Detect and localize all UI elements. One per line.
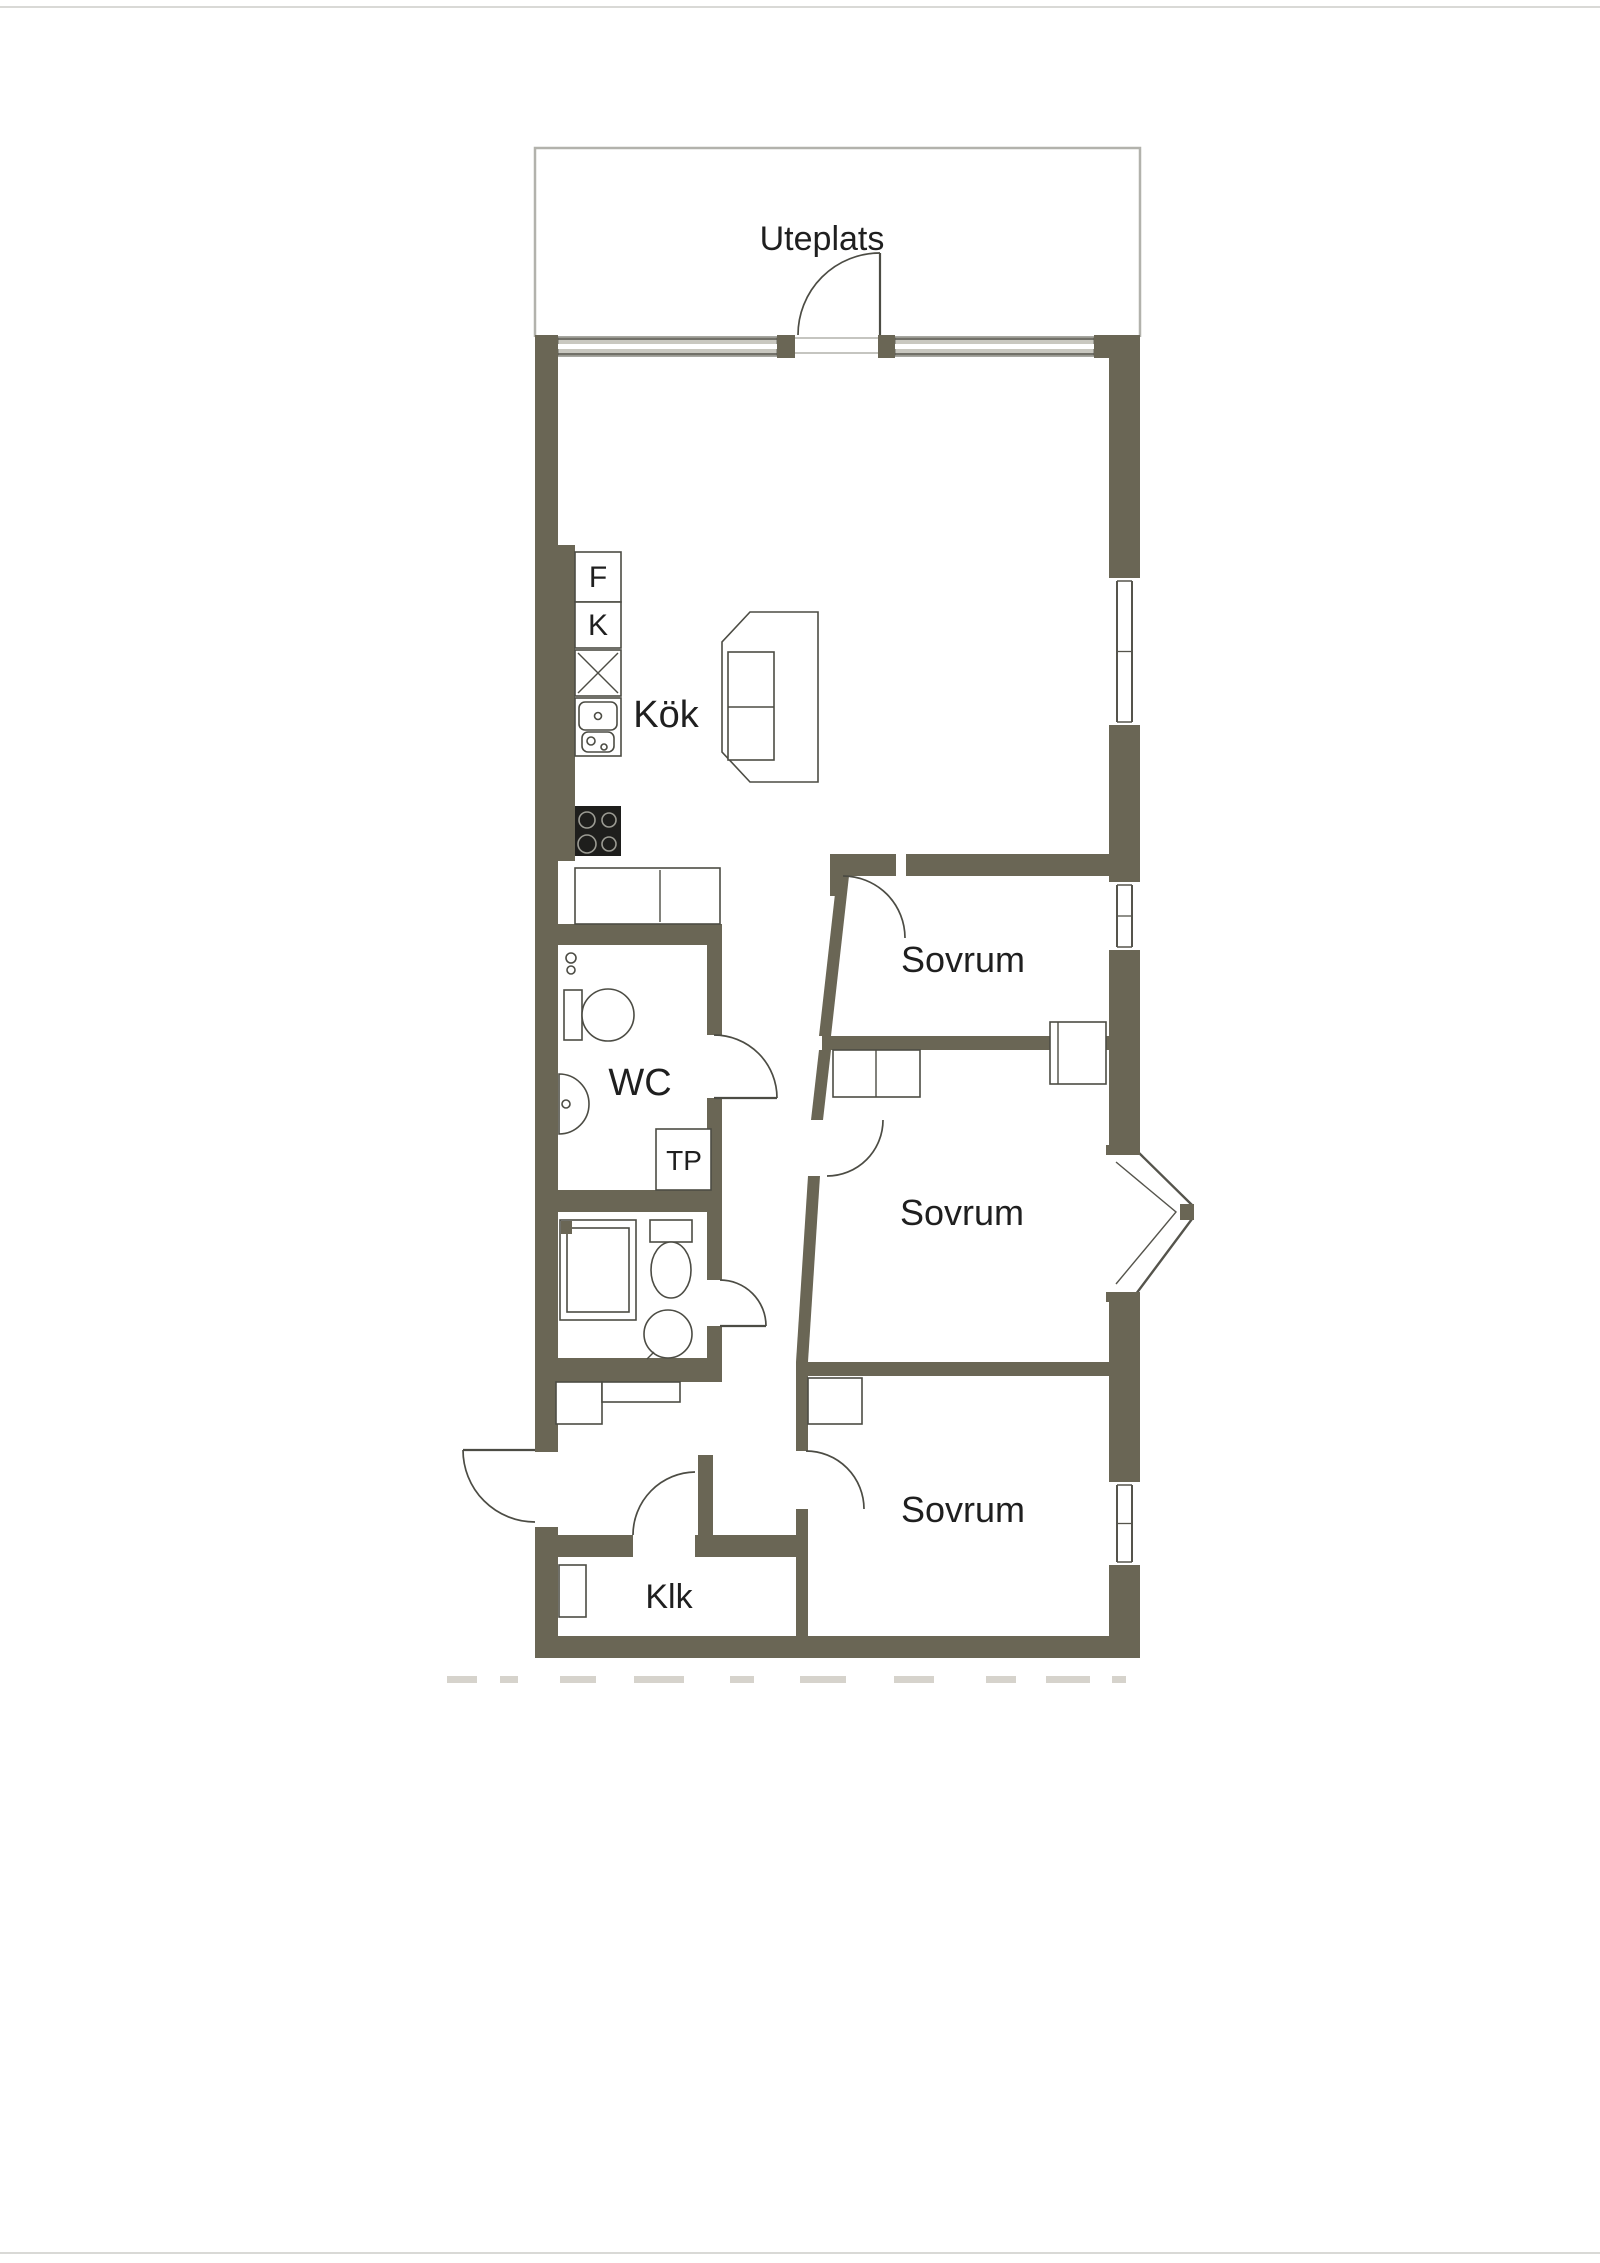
entry-door-swing [463,1450,535,1522]
bath-toilet-tank [650,1220,692,1242]
bath-basin-tap [647,1352,654,1359]
wall-segment [557,1358,722,1382]
kitchen-island-inner [728,652,774,760]
faint-scale-mark [986,1676,1016,1683]
room-label-sovrum-1: Sovrum [901,939,1025,980]
wc-toilet-tank [564,990,582,1040]
bath-basin [644,1310,692,1358]
wall-sovrum2-west-lower [796,1176,820,1362]
faint-scale-mark [894,1676,934,1683]
faint-scale-mark [500,1676,518,1683]
wall-segment [557,924,722,945]
room-label-sovrum-3: Sovrum [901,1489,1025,1530]
wc-toilet-bowl [582,989,634,1041]
wall-segment [707,945,722,1035]
klk-shelf [559,1565,586,1617]
room-label-wc: WC [608,1062,671,1104]
sovrum2-door-swing [827,1120,883,1176]
floorplan-canvas: UteplatsKökFKWCTPSovrumSovrumSovrumKlk [0,0,1600,2263]
sovrum3-door-swing [806,1451,864,1509]
wall-segment [553,1535,633,1557]
sink-basin [579,702,617,730]
wall-segment [698,1455,713,1535]
bay-window-apex [1180,1204,1194,1220]
wall-segment [535,335,558,1452]
wall-segment [796,1509,808,1636]
wall-segment [557,545,575,861]
faint-scale-mark [1112,1676,1126,1683]
faint-scale-mark [447,1676,477,1683]
floor-plan-page: UteplatsKökFKWCTPSovrumSovrumSovrumKlk [0,0,1600,2263]
wall-segment [535,335,558,358]
kitchen-counter [575,868,720,924]
hall-closet-2 [602,1382,680,1402]
sovrum1-door-swing [843,876,905,938]
room-label-kok: Kök [633,694,699,736]
patio-door-swing [798,253,880,335]
appliance-label-k: K [588,609,608,642]
wall-segment [800,1362,1109,1376]
klk-door-swing [633,1472,695,1535]
room-label-klk: Klk [645,1578,693,1616]
shower-inner [567,1228,629,1312]
wall-segment [906,854,1109,876]
appliance-label-f: F [589,561,607,594]
faint-scale-mark [560,1676,596,1683]
wall-sovrum2-west-upper [811,1050,831,1120]
wall-segment [777,335,795,358]
wall-segment [1109,950,1140,1155]
wall-segment [535,1636,1140,1658]
appliance-label-tp: TP [666,1145,702,1176]
room-label-sovrum-2: Sovrum [900,1192,1024,1233]
sovrum3-closet [808,1378,862,1424]
faint-scale-mark [634,1676,684,1683]
wc-basin [559,1074,589,1134]
hall-closet-1 [556,1382,602,1424]
wall-segment [557,1190,722,1212]
bay-window-floor [1106,1155,1190,1292]
floor-drain-2 [567,966,575,974]
bath-door-swing [720,1280,766,1326]
faint-scale-mark [1046,1676,1090,1683]
faint-scale-mark [800,1676,846,1683]
wall-segment [695,1535,801,1557]
bay-window-jamb [1106,1145,1140,1155]
room-label-uteplats: Uteplats [760,220,885,258]
bay-window-jamb [1106,1292,1140,1302]
shower-valve [561,1221,572,1234]
wc-door-swing [714,1035,777,1098]
wall-segment [1109,1292,1140,1482]
faint-scale-mark [730,1676,754,1683]
wall-segment [1109,335,1140,578]
wall-sovrum1-west [819,876,849,1036]
bath-toilet-bowl [651,1242,691,1298]
floor-drain-1 [566,953,576,963]
wall-segment [1109,725,1140,882]
wall-segment [878,335,895,358]
wall-segment [707,1212,722,1280]
